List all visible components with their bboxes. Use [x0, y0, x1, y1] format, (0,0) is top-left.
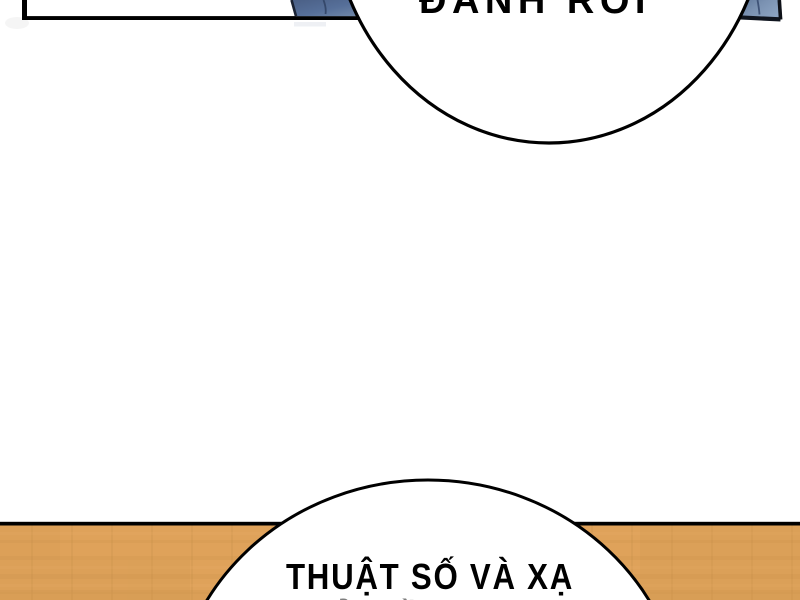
svg-text:ĐÁNH RỒI: ĐÁNH RỒI [419, 0, 651, 22]
svg-text:THUẬT SỐ VÀ XẠ: THUẬT SỐ VÀ XẠ [286, 556, 574, 598]
